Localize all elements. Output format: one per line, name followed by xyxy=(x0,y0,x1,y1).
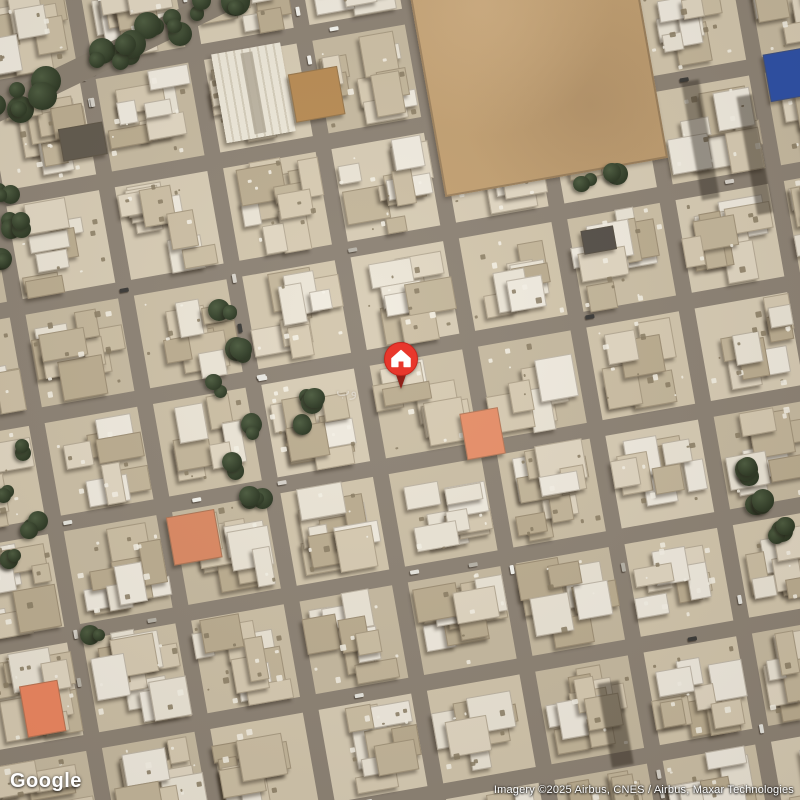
tree xyxy=(293,416,312,435)
tree xyxy=(246,426,259,439)
tree xyxy=(28,82,56,110)
tree xyxy=(603,163,622,182)
faint-street-label: وب xyxy=(336,382,357,400)
tree xyxy=(167,19,181,33)
tree xyxy=(752,489,775,512)
house-marker-pin[interactable] xyxy=(378,339,424,397)
tree xyxy=(93,629,105,641)
tree xyxy=(573,176,590,193)
tree xyxy=(8,549,21,562)
tree xyxy=(223,305,237,319)
tree xyxy=(205,374,222,391)
attribution-text: Imagery ©2025 Airbus, CNES / Airbus, Max… xyxy=(494,784,794,796)
tree xyxy=(20,522,38,540)
map-viewport[interactable]: وب Google Imagery ©2025 Airbus, CNES / A… xyxy=(0,0,800,800)
map-overlay-layer xyxy=(0,0,800,800)
tree xyxy=(230,338,252,360)
tree xyxy=(0,488,11,503)
google-logo[interactable]: Google xyxy=(10,770,82,793)
tree xyxy=(222,452,242,472)
tree xyxy=(738,457,757,476)
tree xyxy=(112,53,129,70)
tree xyxy=(89,52,105,68)
tree xyxy=(11,101,27,117)
tree xyxy=(239,486,260,507)
tree xyxy=(776,517,795,536)
tree xyxy=(228,0,244,15)
tree xyxy=(115,34,136,55)
tree xyxy=(9,82,25,98)
tree xyxy=(12,212,30,230)
